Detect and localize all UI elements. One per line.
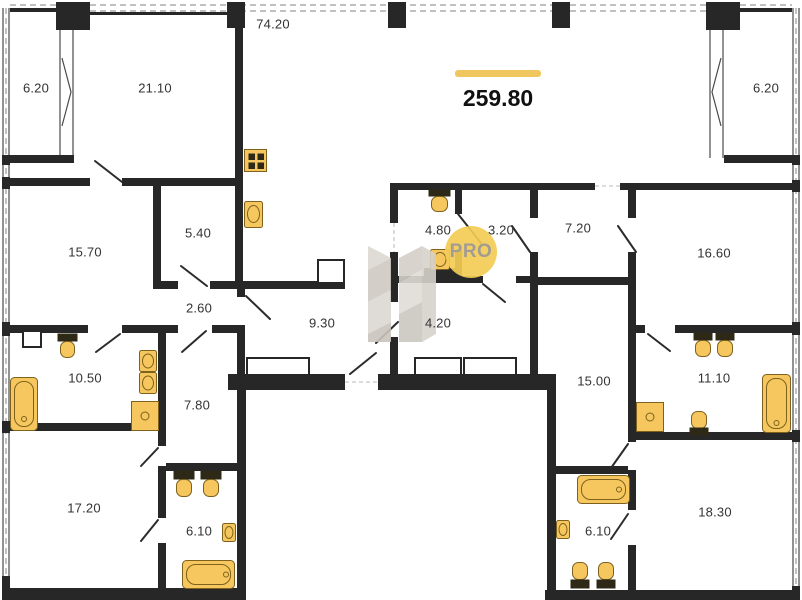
wall <box>153 281 178 289</box>
door-leaf <box>350 353 376 374</box>
wall <box>122 325 178 333</box>
door-leaf <box>512 226 530 252</box>
bathtub-icon <box>183 561 235 589</box>
wall <box>158 466 166 518</box>
duct-shaft <box>415 358 461 375</box>
wall <box>166 463 243 471</box>
duct-shaft <box>318 260 344 283</box>
wall <box>237 390 246 600</box>
toilet-icon <box>571 563 590 589</box>
wall <box>2 177 10 189</box>
shower-icon <box>637 403 664 432</box>
door-leaf <box>95 161 122 182</box>
wall <box>628 252 636 325</box>
wall <box>122 178 243 186</box>
door-leaf <box>483 284 505 302</box>
floor-plan-drawing <box>0 0 802 600</box>
toilet-icon <box>597 563 616 589</box>
duct-shaft <box>247 358 309 375</box>
wall <box>2 588 245 600</box>
stove-icon <box>245 150 267 172</box>
wall <box>390 337 398 378</box>
wall <box>628 325 645 333</box>
wall <box>158 333 166 446</box>
wall <box>390 252 398 302</box>
room-label-9-30: 9.30 <box>309 316 335 331</box>
room-label-4-20: 4.20 <box>425 316 451 331</box>
room-label-3-20: 3.20 <box>488 223 514 238</box>
toilet-icon <box>694 333 713 357</box>
wall <box>792 322 800 335</box>
fixtures <box>11 150 791 589</box>
sink-icon <box>223 524 236 542</box>
door-leaf <box>611 514 628 539</box>
wall <box>2 322 10 336</box>
wall <box>388 2 406 28</box>
toilet-icon <box>690 412 709 436</box>
wall <box>153 186 161 281</box>
door-leaf <box>648 334 670 351</box>
window-casement-mark <box>62 58 71 126</box>
wall <box>620 183 792 190</box>
wall <box>2 155 74 163</box>
wall <box>547 390 556 600</box>
floor-plan-canvas: 6.20 21.10 74.20 6.20 15.70 5.40 2.60 9.… <box>0 0 802 600</box>
wall <box>792 180 800 192</box>
wall <box>530 252 538 378</box>
bathtub-icon <box>11 378 38 431</box>
wall <box>88 12 228 15</box>
wall <box>792 430 800 442</box>
toilet-icon <box>58 334 78 358</box>
shower-icon <box>132 402 159 431</box>
wall <box>390 183 595 190</box>
wall <box>2 421 10 433</box>
door-leaf <box>141 448 158 466</box>
wall <box>545 590 800 600</box>
wall <box>2 325 88 333</box>
wall <box>636 432 792 440</box>
toilet-icon <box>201 471 222 497</box>
room-label-7-20: 7.20 <box>565 221 591 236</box>
duct-shaft <box>464 358 516 375</box>
wall <box>706 2 740 30</box>
wall <box>675 325 792 333</box>
room-label-11-10: 11.10 <box>698 371 731 386</box>
room-label-balcony-left: 6.20 <box>23 81 49 96</box>
room-label-4-80: 4.80 <box>425 223 451 238</box>
window-casement-mark <box>712 58 721 126</box>
wall <box>2 576 10 590</box>
wall <box>556 466 628 474</box>
pro-watermark-badge: PRO <box>445 226 497 278</box>
wall <box>628 545 636 592</box>
room-label-15-70: 15.70 <box>68 245 102 260</box>
door-leaf <box>141 520 158 541</box>
door-leaf <box>246 296 270 319</box>
duct-shaft <box>23 331 41 347</box>
toilet-icon <box>716 333 735 357</box>
room-label-6-10-left: 6.10 <box>186 524 212 539</box>
kitchen-sink-icon <box>245 202 263 228</box>
sink-icon <box>557 521 570 539</box>
wall <box>228 374 345 390</box>
room-label-10-50: 10.50 <box>68 371 102 386</box>
wall <box>237 281 245 297</box>
bathtub-icon <box>578 476 630 504</box>
wall <box>538 277 636 285</box>
wall <box>10 8 58 12</box>
room-label-2-60: 2.60 <box>186 301 212 316</box>
room-label-7-80: 7.80 <box>184 398 210 413</box>
wall <box>628 190 636 218</box>
total-area-value: 259.80 <box>440 85 556 112</box>
sink-icon <box>140 351 157 372</box>
wall <box>552 2 570 28</box>
room-label-18-30: 18.30 <box>698 505 732 520</box>
wall <box>724 155 798 163</box>
room-label-balcony-right: 6.20 <box>753 81 779 96</box>
wall <box>455 190 462 214</box>
wall <box>378 374 556 390</box>
wall <box>792 155 800 165</box>
bathtub-icon <box>763 375 791 433</box>
wall <box>158 543 166 590</box>
room-label-6-10-right: 6.10 <box>585 524 611 539</box>
total-area-accent-bar <box>455 70 541 77</box>
wall <box>237 325 245 378</box>
wall <box>738 8 792 12</box>
door-leaf <box>96 334 120 352</box>
door-leaf <box>611 444 628 468</box>
wall <box>530 190 538 218</box>
wall <box>792 586 800 600</box>
room-label-5-40: 5.40 <box>185 226 211 241</box>
wall <box>390 190 398 223</box>
room-label-21-10: 21.10 <box>138 81 172 96</box>
sink-icon <box>140 373 157 394</box>
door-leaf <box>182 331 206 352</box>
door-leaf <box>181 266 207 286</box>
wall <box>56 2 90 30</box>
wall <box>10 178 90 186</box>
door-leaf <box>618 226 636 252</box>
toilet-icon <box>174 471 195 497</box>
room-label-15-00: 15.00 <box>577 374 611 389</box>
wall <box>2 155 10 165</box>
room-label-terrace: 74.20 <box>256 17 290 32</box>
wall <box>628 333 636 442</box>
room-label-16-60: 16.60 <box>697 246 731 261</box>
toilet-icon <box>429 190 451 212</box>
wall <box>235 14 243 283</box>
room-label-17-20: 17.20 <box>67 501 101 516</box>
